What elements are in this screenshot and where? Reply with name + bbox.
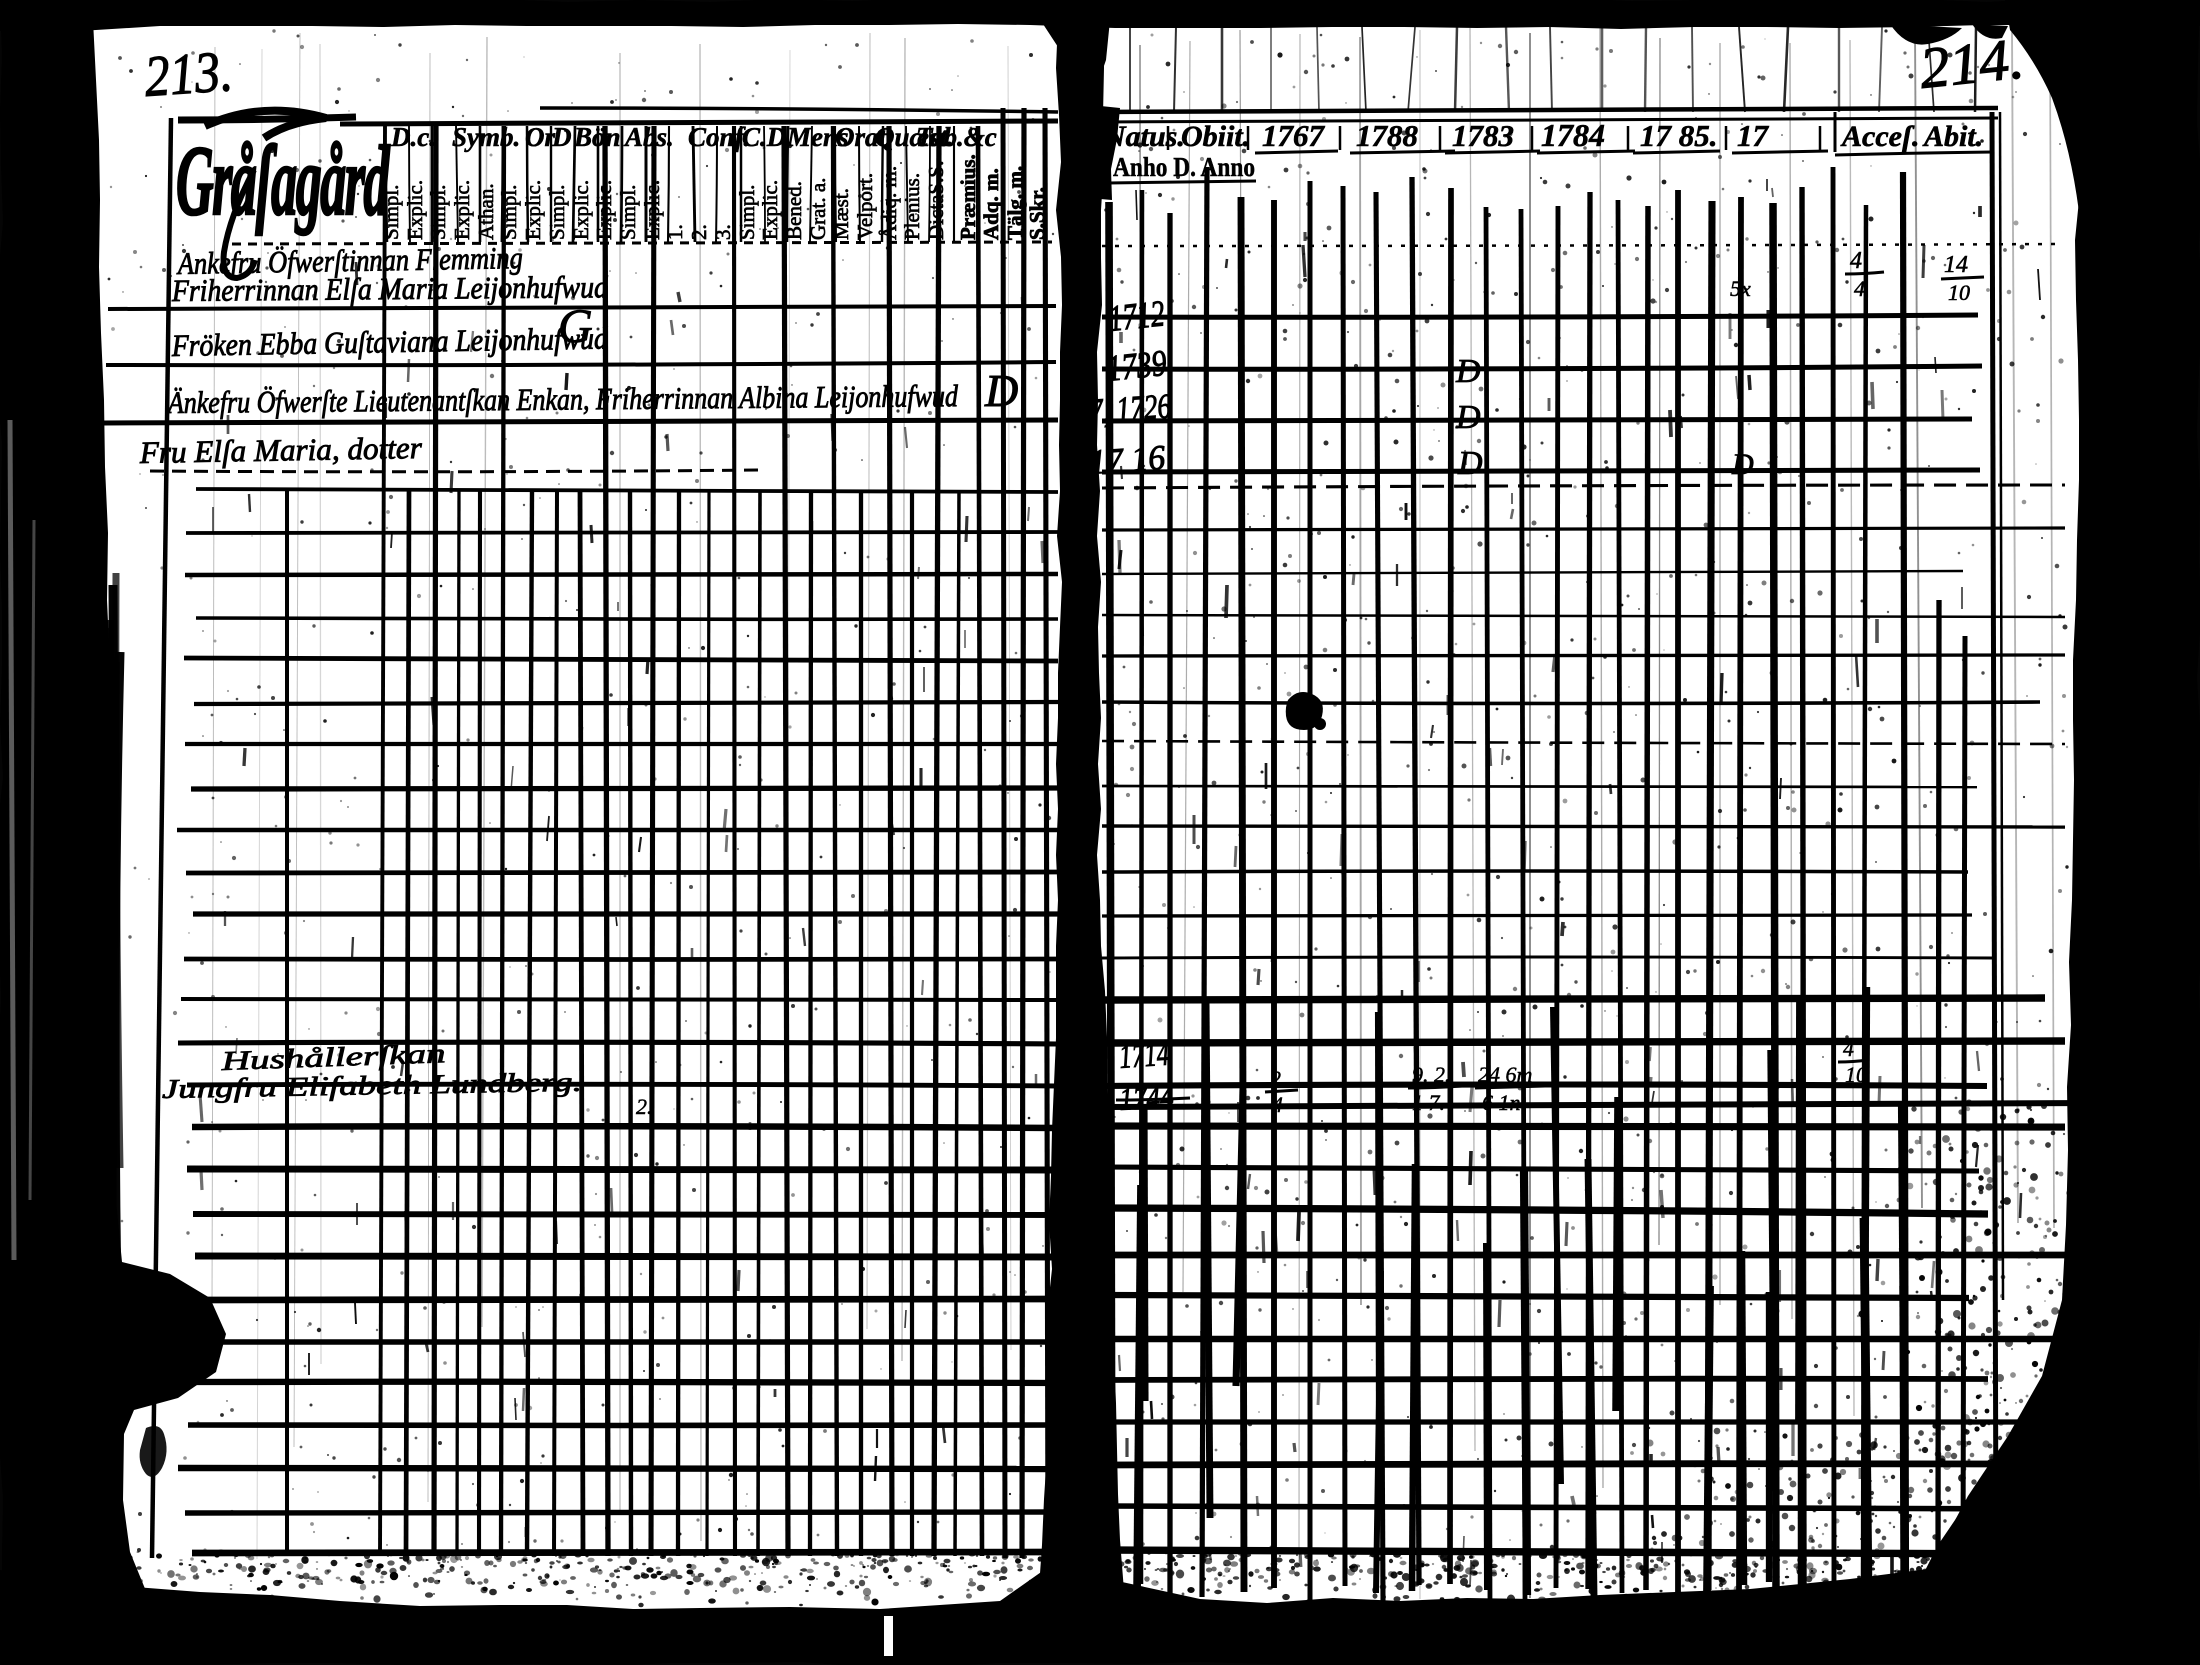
svg-text:3.: 3. [711, 224, 735, 240]
svg-text:Friherrinnan Elſa Maria Leij: Friherrinnan Elſa Maria Leijonhufwud [171, 269, 609, 308]
svg-text:Explic.: Explic. [521, 180, 545, 240]
svg-text:D: D [1731, 448, 1754, 481]
svg-text:1739: 1739 [1105, 343, 1169, 390]
svg-text:Änkefru Öfwerſte Lieutenantſka: Änkefru Öfwerſte Lieutenantſkan Enkan, F… [166, 378, 958, 420]
svg-text:Explic.: Explic. [403, 180, 427, 240]
svg-text:G: G [558, 300, 593, 353]
svg-text:1784: 1784 [1541, 117, 1605, 153]
svg-text:1712: 1712 [1107, 293, 1167, 340]
svg-text:2.: 2. [636, 1094, 653, 1119]
svg-text:9. 2.: 9. 2. [1412, 1062, 1451, 1087]
svg-text:D: D [1457, 445, 1483, 482]
svg-text:Simpl.: Simpl. [379, 185, 403, 240]
svg-text:1767: 1767 [1262, 118, 1326, 153]
svg-text:24 6m: 24 6m [1478, 1062, 1532, 1087]
svg-text:D: D [1455, 399, 1481, 436]
svg-text:Explic.: Explic. [758, 180, 782, 240]
svg-text:4: 4 [1854, 276, 1865, 301]
svg-text:Simpl.: Simpl. [735, 185, 759, 240]
svg-text:D: D [984, 365, 1018, 416]
svg-text:4: 4 [1272, 1092, 1283, 1117]
svg-text:17 16: 17 16 [1088, 438, 1167, 482]
svg-text:6 1n: 6 1n [1482, 1090, 1521, 1115]
svg-text:4: 4 [1843, 1036, 1854, 1061]
svg-text:D: D [551, 122, 572, 152]
svg-text:1.: 1. [663, 224, 687, 240]
svg-text:Abs.: Abs. [623, 122, 674, 152]
svg-text:Simpl.: Simpl. [545, 185, 569, 240]
svg-text:Explic.: Explic. [450, 180, 474, 240]
svg-text:Gråſagård: Gråſagård [176, 125, 391, 236]
svg-text:14: 14 [1944, 252, 1968, 278]
svg-text:Velport.: Velport. [853, 173, 877, 240]
svg-text:Adq. m.: Adq. m. [979, 168, 1003, 240]
svg-text:D.c.: D.c. [390, 122, 436, 152]
svg-text:Athan.: Athan. [474, 183, 498, 240]
svg-text:1714: 1714 [1118, 1036, 1170, 1076]
svg-text:2.: 2. [687, 224, 711, 240]
svg-text:10: 10 [1948, 280, 1970, 305]
svg-text:Tab.&c: Tab.&c [916, 122, 997, 152]
svg-text:2: 2 [1270, 1066, 1281, 1091]
svg-text:1783: 1783 [1452, 118, 1514, 153]
svg-text:213.: 213. [142, 38, 234, 109]
svg-text:Fru Elſa Maria, dotter: Fru Elſa Maria, dotter [139, 430, 424, 470]
svg-text:17 85.: 17 85. [1640, 118, 1718, 153]
svg-text:Plenius.: Plenius. [900, 173, 924, 240]
svg-text:1788: 1788 [1356, 118, 1419, 153]
svg-text:4: 4 [1850, 248, 1862, 274]
svg-text:5x: 5x [1730, 276, 1751, 301]
svg-text:Symb.: Symb. [452, 122, 520, 152]
svg-text:10: 10 [1845, 1062, 1867, 1087]
svg-text:Obiit.: Obiit. [1181, 120, 1250, 153]
svg-text:Simpl.: Simpl. [616, 185, 640, 240]
svg-text:Anho D. Anno: Anho D. Anno [1113, 152, 1255, 182]
svg-text:Simpl.: Simpl. [497, 185, 521, 240]
svg-text:1 7.: 1 7. [1412, 1090, 1445, 1115]
svg-text:7, 1726: 7, 1726 [1088, 386, 1173, 431]
svg-text:D: D [1455, 353, 1481, 390]
svg-text:Acceſ.: Acceſ. [1840, 120, 1919, 153]
svg-text:Abit.: Abit. [1922, 120, 1983, 153]
